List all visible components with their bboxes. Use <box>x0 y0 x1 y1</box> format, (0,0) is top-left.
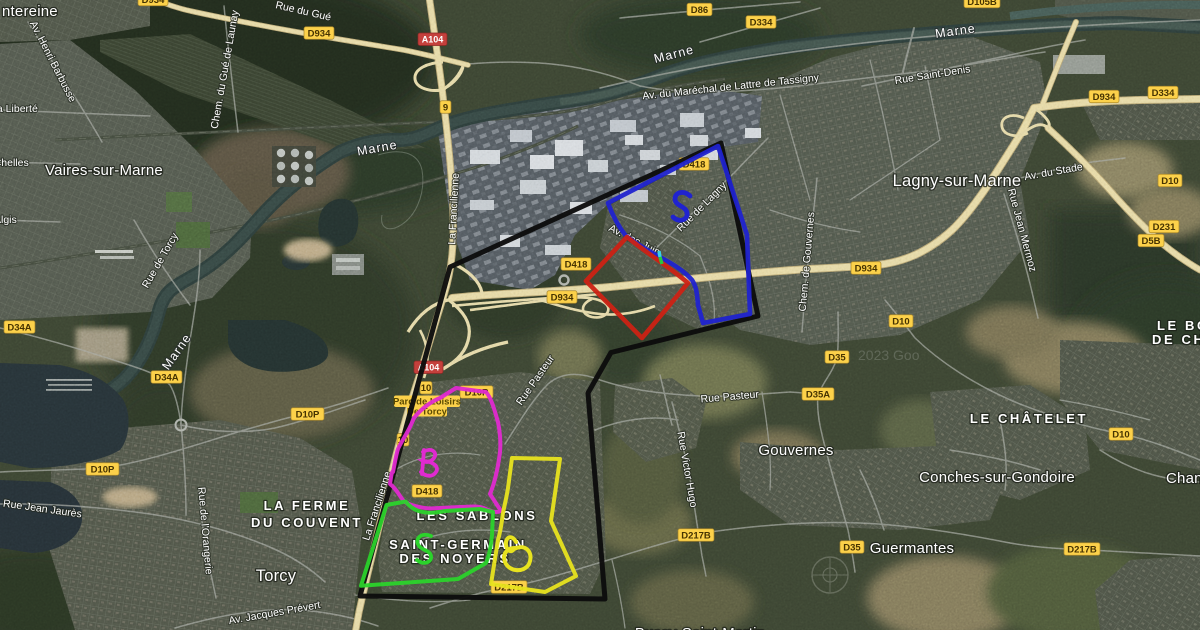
svg-text:DU COUVENT: DU COUVENT <box>251 515 363 530</box>
svg-text:10: 10 <box>421 383 432 394</box>
svg-text:D217B: D217B <box>1067 544 1097 555</box>
svg-text:A104: A104 <box>422 35 444 45</box>
svg-text:2023 Goo: 2023 Goo <box>858 347 920 363</box>
svg-text:Gouvernes: Gouvernes <box>758 442 833 459</box>
svg-text:D217B: D217B <box>681 530 711 541</box>
svg-text:D5B: D5B <box>1141 236 1160 247</box>
svg-text:D35: D35 <box>828 352 846 363</box>
svg-text:D10: D10 <box>892 316 909 327</box>
svg-text:Torcy: Torcy <box>256 567 297 585</box>
svg-text:ntereine: ntereine <box>2 3 58 20</box>
svg-text:D334: D334 <box>750 17 773 28</box>
svg-text:D34A: D34A <box>154 372 178 383</box>
svg-text:D10: D10 <box>1161 176 1178 187</box>
svg-text:D334: D334 <box>1152 88 1175 99</box>
svg-text:D934: D934 <box>308 28 331 39</box>
svg-text:Algis: Algis <box>0 214 17 226</box>
svg-text:D934: D934 <box>855 263 878 274</box>
svg-text:Av. de Chelles: Av. de Chelles <box>0 157 29 169</box>
svg-text:LE CHÂTELET: LE CHÂTELET <box>970 411 1088 426</box>
svg-text:Guermantes: Guermantes <box>870 540 955 557</box>
svg-text:D10P: D10P <box>91 464 115 475</box>
svg-text:DE CHIGNY: DE CHIGNY <box>1152 332 1200 347</box>
svg-text:D35A: D35A <box>806 389 830 400</box>
svg-text:D10P: D10P <box>296 409 320 420</box>
svg-text:D934: D934 <box>142 0 165 6</box>
svg-text:D105B: D105B <box>967 0 997 8</box>
svg-text:D34A: D34A <box>7 322 31 333</box>
svg-text:de la Liberté: de la Liberté <box>0 103 38 115</box>
svg-text:D934: D934 <box>551 292 574 303</box>
svg-text:D10: D10 <box>1112 429 1129 440</box>
svg-text:Vaires-sur-Marne: Vaires-sur-Marne <box>45 162 163 179</box>
svg-text:D231: D231 <box>1153 222 1176 233</box>
svg-text:D35: D35 <box>843 542 861 553</box>
svg-text:Conches-sur-Gondoire: Conches-sur-Gondoire <box>919 469 1075 486</box>
svg-text:LE BOIS: LE BOIS <box>1157 318 1200 333</box>
svg-text:Chanteloup: Chanteloup <box>1166 470 1200 487</box>
svg-text:D418: D418 <box>565 259 588 270</box>
svg-text:9: 9 <box>443 102 448 113</box>
svg-text:D418: D418 <box>416 486 439 497</box>
svg-text:Lagny-sur-Marne: Lagny-sur-Marne <box>893 172 1022 190</box>
svg-text:D86: D86 <box>691 5 708 16</box>
svg-text:LA FERME: LA FERME <box>264 498 351 513</box>
svg-text:Bussy-Saint-Martin: Bussy-Saint-Martin <box>635 625 765 630</box>
svg-text:D934: D934 <box>1093 92 1116 103</box>
